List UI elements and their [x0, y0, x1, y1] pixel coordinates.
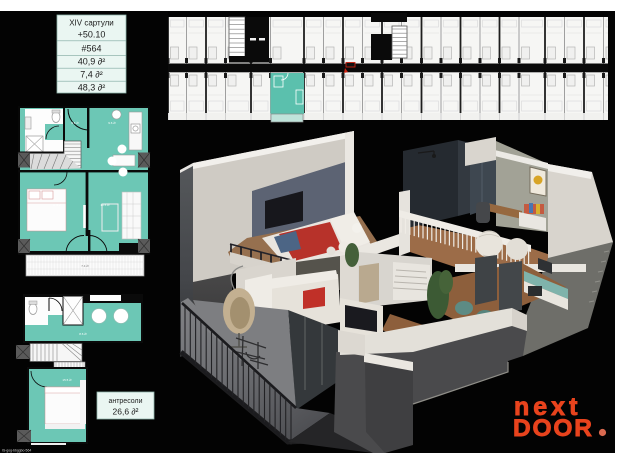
svg-text:9.5 ∂²: 9.5 ∂²: [71, 121, 79, 125]
svg-text:DOOR: DOOR: [513, 415, 594, 442]
svg-text:48,3 ∂²: 48,3 ∂²: [78, 83, 105, 93]
svg-text:9.6 ∂²: 9.6 ∂²: [108, 121, 116, 125]
svg-text:11.6 ∂²: 11.6 ∂²: [53, 203, 62, 207]
svg-text:7,4 ∂²: 7,4 ∂²: [80, 70, 102, 80]
svg-text:#564: #564: [81, 44, 101, 54]
svg-text:15.5 ∂²: 15.5 ∂²: [62, 378, 71, 382]
svg-text:26,6 ∂²: 26,6 ∂²: [113, 407, 139, 417]
svg-text:антресоли: антресоли: [108, 398, 142, 405]
svg-text:7.4 ∂²: 7.4 ∂²: [81, 264, 89, 268]
svg-text:8.6 ∂²: 8.6 ∂²: [79, 332, 87, 336]
svg-text:IS-gog-bbggbo-564: IS-gog-bbggbo-564: [2, 449, 31, 453]
svg-text:10.5 ∂²: 10.5 ∂²: [100, 203, 109, 207]
svg-text:40,9 ∂²: 40,9 ∂²: [78, 57, 105, 67]
svg-text:+50.10: +50.10: [78, 30, 106, 40]
svg-text:XIV сартули: XIV сартули: [69, 19, 114, 28]
